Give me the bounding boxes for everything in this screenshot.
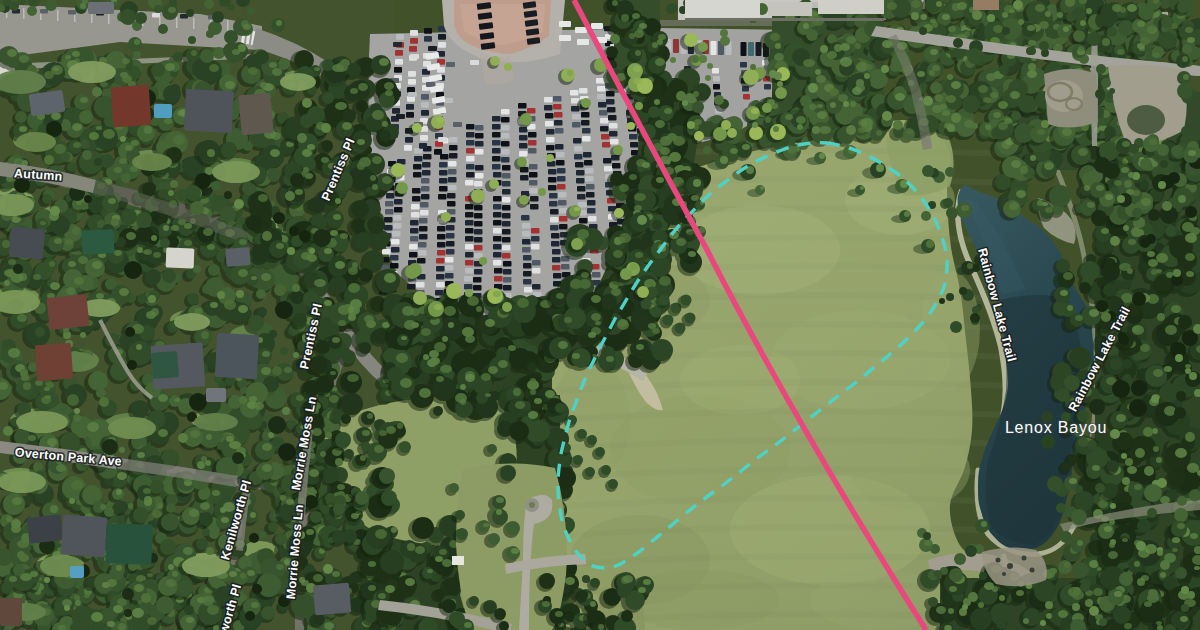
svg-text:Lenox Bayou: Lenox Bayou <box>1005 419 1107 436</box>
